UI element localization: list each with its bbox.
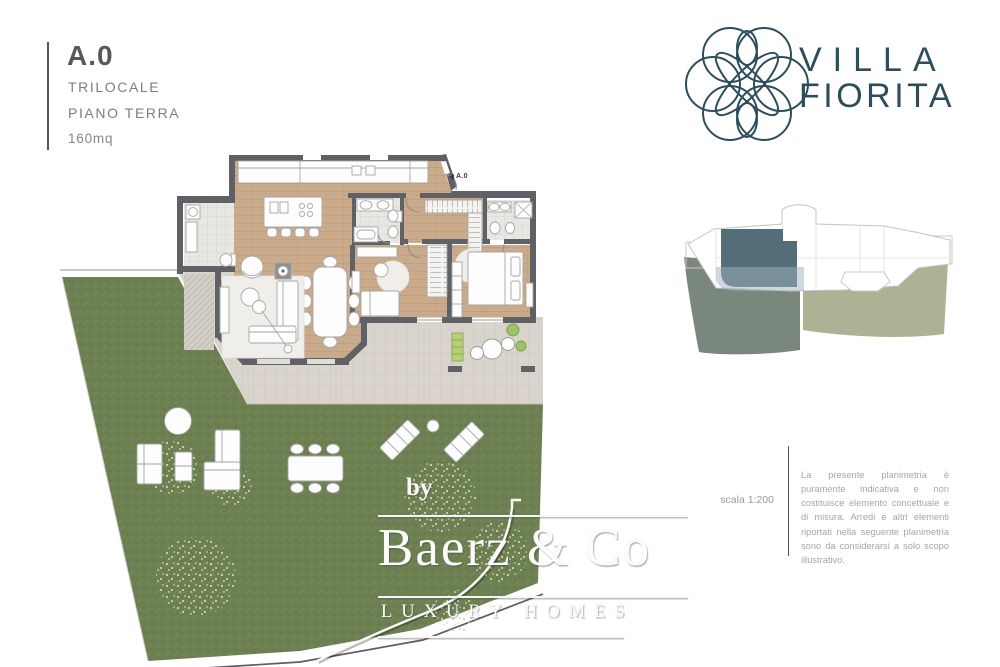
entrance-label: A.0 (456, 173, 468, 180)
tv-bench (220, 287, 229, 333)
entrance-marker: A.0 (449, 173, 468, 180)
entrance-direction-icon (449, 174, 454, 180)
terrace-table (482, 339, 502, 359)
bedroom-1-wardrobe (427, 245, 447, 297)
site-terrace-highlight (716, 267, 804, 291)
disclaimer-divider (788, 446, 789, 556)
bedroom-2-wardrobe (452, 262, 462, 317)
unit-floor: PIANO TERRA (68, 105, 180, 121)
header-divider (47, 42, 49, 150)
terrace-plant (516, 341, 526, 351)
armchair (241, 256, 263, 278)
site-plan (684, 205, 952, 355)
brand-name: VILLA FIORITA (799, 42, 955, 114)
villa-fiorita-logo-icon (686, 28, 808, 140)
brand-name-line2: FIORITA (799, 78, 955, 114)
terrace-plant (507, 324, 519, 336)
brand-name-line1: VILLA (799, 42, 955, 78)
unit-code: A.0 (67, 40, 114, 72)
single-bed (361, 291, 399, 316)
desk (357, 247, 397, 257)
disclaimer-text: La presente planimetria è puramente indi… (801, 468, 949, 567)
kitchen-counter (238, 161, 428, 183)
scale-note: scala 1:200 (712, 494, 774, 506)
garden-dining-set (288, 444, 343, 493)
unit-type: TRILOCALE (68, 79, 160, 95)
unit-area: 160mq (68, 131, 113, 146)
page: by Baerz & Co LUXURY HOMES A.0 TRILOCALE… (0, 0, 1000, 667)
entrance-porch (184, 274, 214, 350)
